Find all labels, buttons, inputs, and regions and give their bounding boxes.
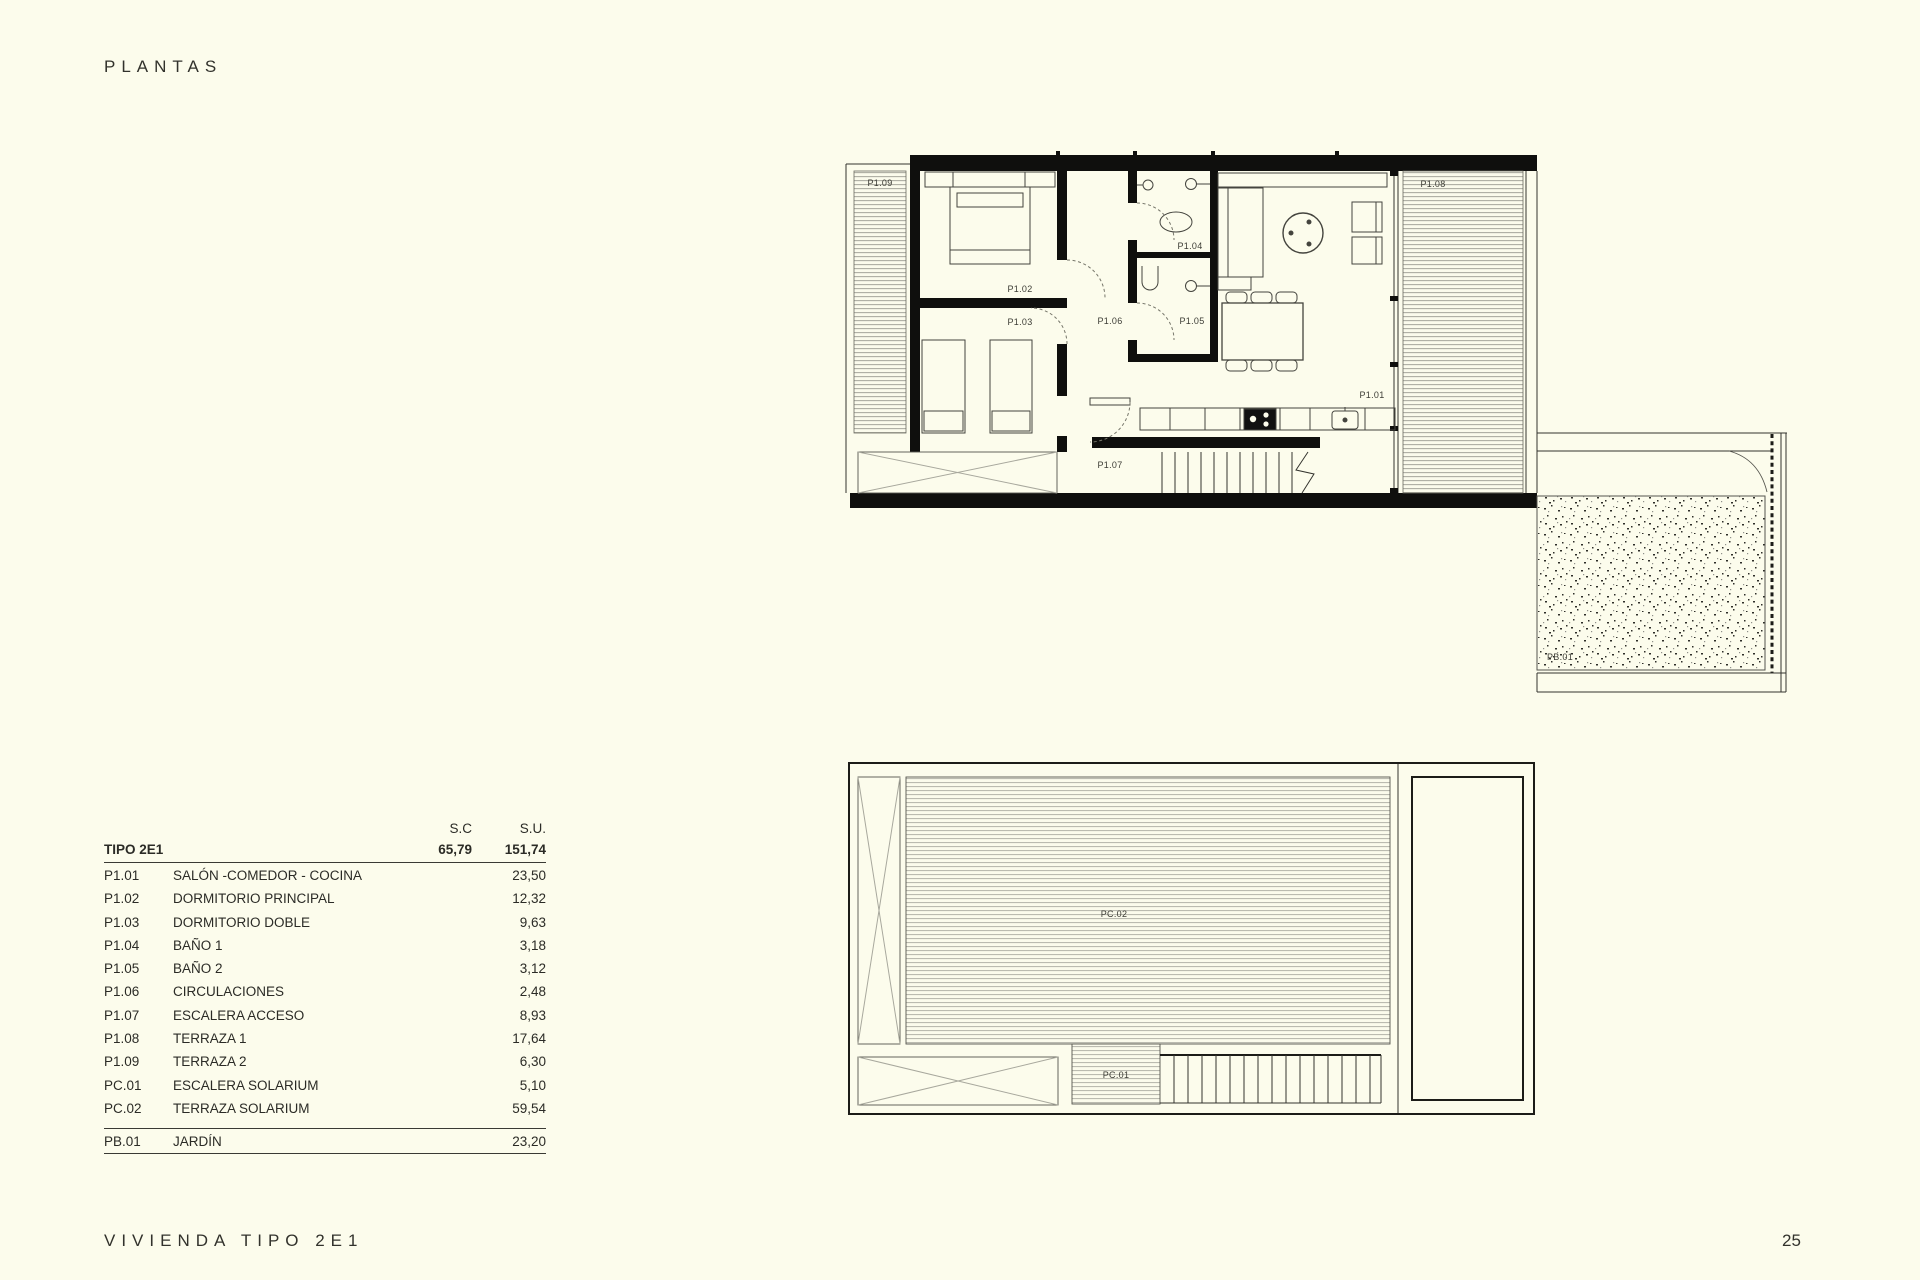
table-row: P1.04BAÑO 13,18 [104,933,546,956]
room-label-p102: P1.02 [1007,284,1032,294]
room-name: ESCALERA ACCESO [173,1009,304,1023]
room-code: P1.06 [104,985,139,999]
solarium-left-void [858,777,900,1044]
type-su-total: 151,74 [505,843,546,857]
room-label-pc02: PC.02 [1101,909,1128,919]
page-title: PLANTAS [104,57,222,77]
room-name: TERRAZA SOLARIUM [173,1102,310,1116]
room-code: P1.07 [104,1009,139,1023]
areas-table: S.C S.U. TIPO 2E1 65,79 151,74 P1.01SALÓ… [104,818,546,1154]
bedroom-principal-furniture [925,172,1055,264]
room-label-p101: P1.01 [1359,390,1384,400]
table-row: P1.08TERRAZA 117,64 [104,1026,546,1049]
room-su: 9,63 [520,916,546,930]
room-label-p103: P1.03 [1007,317,1032,327]
room-code: P1.02 [104,892,139,906]
table-row: P1.09TERRAZA 26,30 [104,1049,546,1072]
room-code: PB.01 [104,1135,141,1149]
room-su: 3,12 [520,962,546,976]
floor-plan-solarium: PC.02PC.01 [848,762,1535,1115]
void-x-box [858,452,1057,493]
room-code: P1.03 [104,916,139,930]
table-row: P1.01SALÓN -COMEDOR - COCINA23,50 [104,863,546,886]
room-su: 3,18 [520,939,546,953]
table-row: PB.01 JARDÍN 23,20 [104,1129,546,1153]
room-su: 23,50 [512,869,546,883]
room-label-pc01: PC.01 [1103,1070,1130,1080]
floor-plan-first-floor: P1.09P1.02P1.03P1.06P1.04P1.05P1.01P1.07… [840,140,1800,720]
table-row: P1.02DORMITORIO PRINCIPAL12,32 [104,886,546,909]
room-su: 8,93 [520,1009,546,1023]
table-garden-section: PB.01 JARDÍN 23,20 [104,1128,546,1154]
living-room-furniture [1218,173,1387,371]
window-wall [1390,171,1398,493]
bedroom-doble-furniture [922,340,1032,433]
access-stairs [1162,452,1314,493]
room-name: BAÑO 2 [173,962,223,976]
room-code: P1.09 [104,1055,139,1069]
table-type-row: TIPO 2E1 65,79 151,74 [104,840,546,863]
room-name: BAÑO 1 [173,939,223,953]
room-code: P1.01 [104,869,139,883]
column-header-sc: S.C [449,822,472,836]
type-sc-total: 65,79 [438,843,472,857]
room-label-p108: P1.08 [1420,179,1445,189]
room-code: PC.02 [104,1102,142,1116]
solarium-stairs [1160,1055,1381,1103]
room-su: 2,48 [520,985,546,999]
room-label-p106: P1.06 [1097,316,1122,326]
room-name: CIRCULACIONES [173,985,284,999]
table-row: P1.03DORMITORIO DOBLE9,63 [104,910,546,933]
type-code: TIPO 2E1 [104,843,163,857]
table-row: P1.07ESCALERA ACCESO8,93 [104,1003,546,1026]
room-label-p105: P1.05 [1179,316,1204,326]
table-row: P1.06CIRCULACIONES2,48 [104,979,546,1002]
room-name: JARDÍN [173,1135,222,1149]
footer-title: VIVIENDA TIPO 2E1 [104,1231,363,1251]
solarium-terrace-area [906,777,1390,1044]
table-row: P1.05BAÑO 23,12 [104,956,546,979]
room-su: 12,32 [512,892,546,906]
page-number: 25 [1782,1231,1801,1251]
table-header: S.C S.U. [104,818,546,840]
table-row: PC.02TERRAZA SOLARIUM59,54 [104,1096,546,1119]
room-name: DORMITORIO PRINCIPAL [173,892,335,906]
terrace-1-area [1403,171,1537,493]
room-code: PC.01 [104,1079,142,1093]
room-name: DORMITORIO DOBLE [173,916,310,930]
room-name: TERRAZA 2 [173,1055,247,1069]
room-label-pb01: PB.01 [1547,652,1573,662]
room-label-p107: P1.07 [1097,460,1122,470]
room-name: TERRAZA 1 [173,1032,247,1046]
room-su: 6,30 [520,1055,546,1069]
room-name: SALÓN -COMEDOR - COCINA [173,869,362,883]
room-code: P1.05 [104,962,139,976]
room-label-p109: P1.09 [867,178,892,188]
table-rows: P1.01SALÓN -COMEDOR - COCINA23,50P1.02DO… [104,863,546,1119]
solarium-bottom-void [858,1057,1058,1105]
room-su: 59,54 [512,1102,546,1116]
kitchen-counter [1140,407,1395,430]
document-page: { "page": { "title": "PLANTAS", "footer_… [0,0,1920,1280]
garden-pool-area [1537,433,1787,692]
room-su: 23,20 [512,1135,546,1149]
room-su: 5,10 [520,1079,546,1093]
column-header-su: S.U. [520,822,546,836]
table-row: PC.01ESCALERA SOLARIUM5,10 [104,1073,546,1096]
room-label-p104: P1.04 [1177,241,1202,251]
solarium-right-bay [1412,777,1523,1100]
room-code: P1.04 [104,939,139,953]
room-su: 17,64 [512,1032,546,1046]
room-code: P1.08 [104,1032,139,1046]
room-name: ESCALERA SOLARIUM [173,1079,319,1093]
terrace-2-area [846,164,910,493]
